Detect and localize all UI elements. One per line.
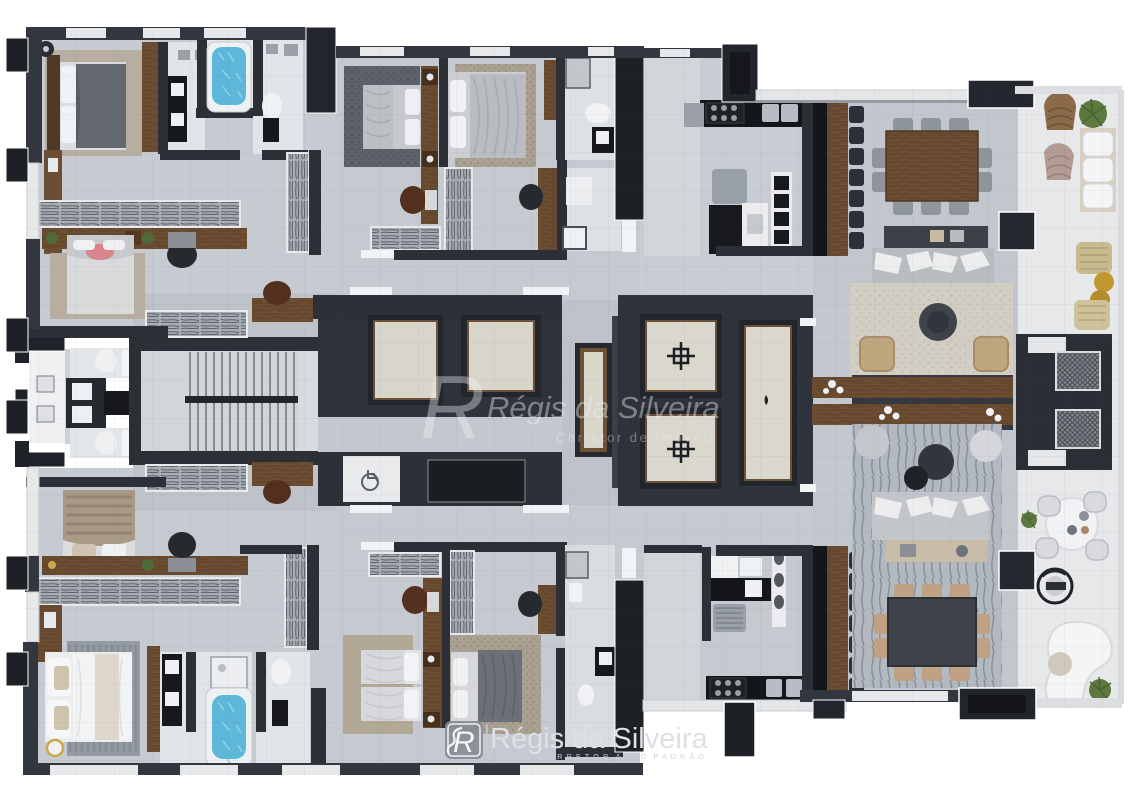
svg-text:Corretor de Imóveis: Corretor de Imóveis: [556, 430, 718, 445]
svg-text:Régis da Silveira: Régis da Silveira: [490, 723, 708, 755]
svg-text:R: R: [420, 358, 485, 458]
svg-text:C O R R E T O R A L T O P A: C O R R E T O R A L T O P A D R Ã O: [538, 752, 705, 761]
svg-text:Régis da Silveira: Régis da Silveira: [487, 390, 720, 425]
